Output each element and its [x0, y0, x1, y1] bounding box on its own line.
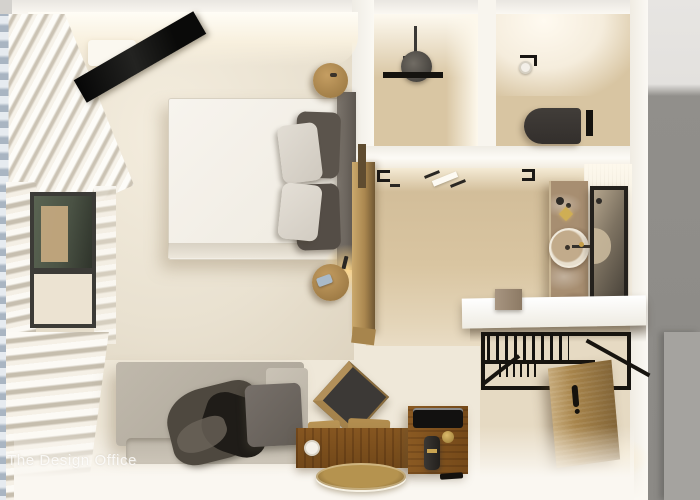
- basin-drain: [565, 245, 570, 250]
- faucet-gold-dot: [579, 242, 584, 247]
- marble-block: [495, 289, 522, 310]
- floorplan-render: The Design Office: [0, 0, 700, 500]
- sofa-cushion: [244, 383, 303, 448]
- nightstand-top: [313, 63, 348, 98]
- curtains-right-of-window: [94, 186, 116, 344]
- shower-niche-bar: [383, 72, 443, 78]
- nightstand-top-item: [330, 73, 337, 77]
- wall-shower-toilet: [478, 0, 496, 150]
- wardrobe-slats: [487, 334, 569, 362]
- window-pane-bottom: [34, 274, 92, 324]
- wood-partition-dark-edge: [358, 144, 366, 188]
- window-glass-wood-reflection: [41, 206, 68, 262]
- gold-knob: [442, 431, 454, 443]
- mirror-fixture-reflection: [596, 198, 602, 204]
- light-pillow-1: [277, 122, 324, 184]
- wall-hung-toilet: [524, 108, 581, 144]
- kettle: [424, 436, 440, 470]
- ceiling-bracket-left: [377, 170, 390, 182]
- kettle-gold-band: [427, 449, 437, 453]
- flush-plate: [586, 110, 593, 136]
- entry-door: [548, 360, 620, 469]
- door-handle-dot: [575, 409, 580, 415]
- paper-roll: [304, 440, 320, 456]
- top-wall: [12, 0, 648, 14]
- black-tray: [413, 408, 463, 428]
- ceiling-bracket-right: [522, 169, 535, 181]
- ceiling-spot-dash-3: [390, 184, 400, 187]
- round-bronze-rug: [316, 463, 406, 490]
- watermark-text: The Design Office: [7, 452, 137, 469]
- vanity-fixture-dot-1: [556, 197, 564, 205]
- wood-partition-end: [351, 327, 376, 346]
- outside-wall-panel: [664, 332, 700, 500]
- window: [30, 192, 96, 328]
- door-handle: [571, 385, 579, 408]
- toilet-paper-roll: [519, 61, 532, 74]
- light-pillow-2: [277, 182, 323, 242]
- right-outer-wall: [630, 0, 648, 500]
- white-counter-shelf: [462, 295, 646, 328]
